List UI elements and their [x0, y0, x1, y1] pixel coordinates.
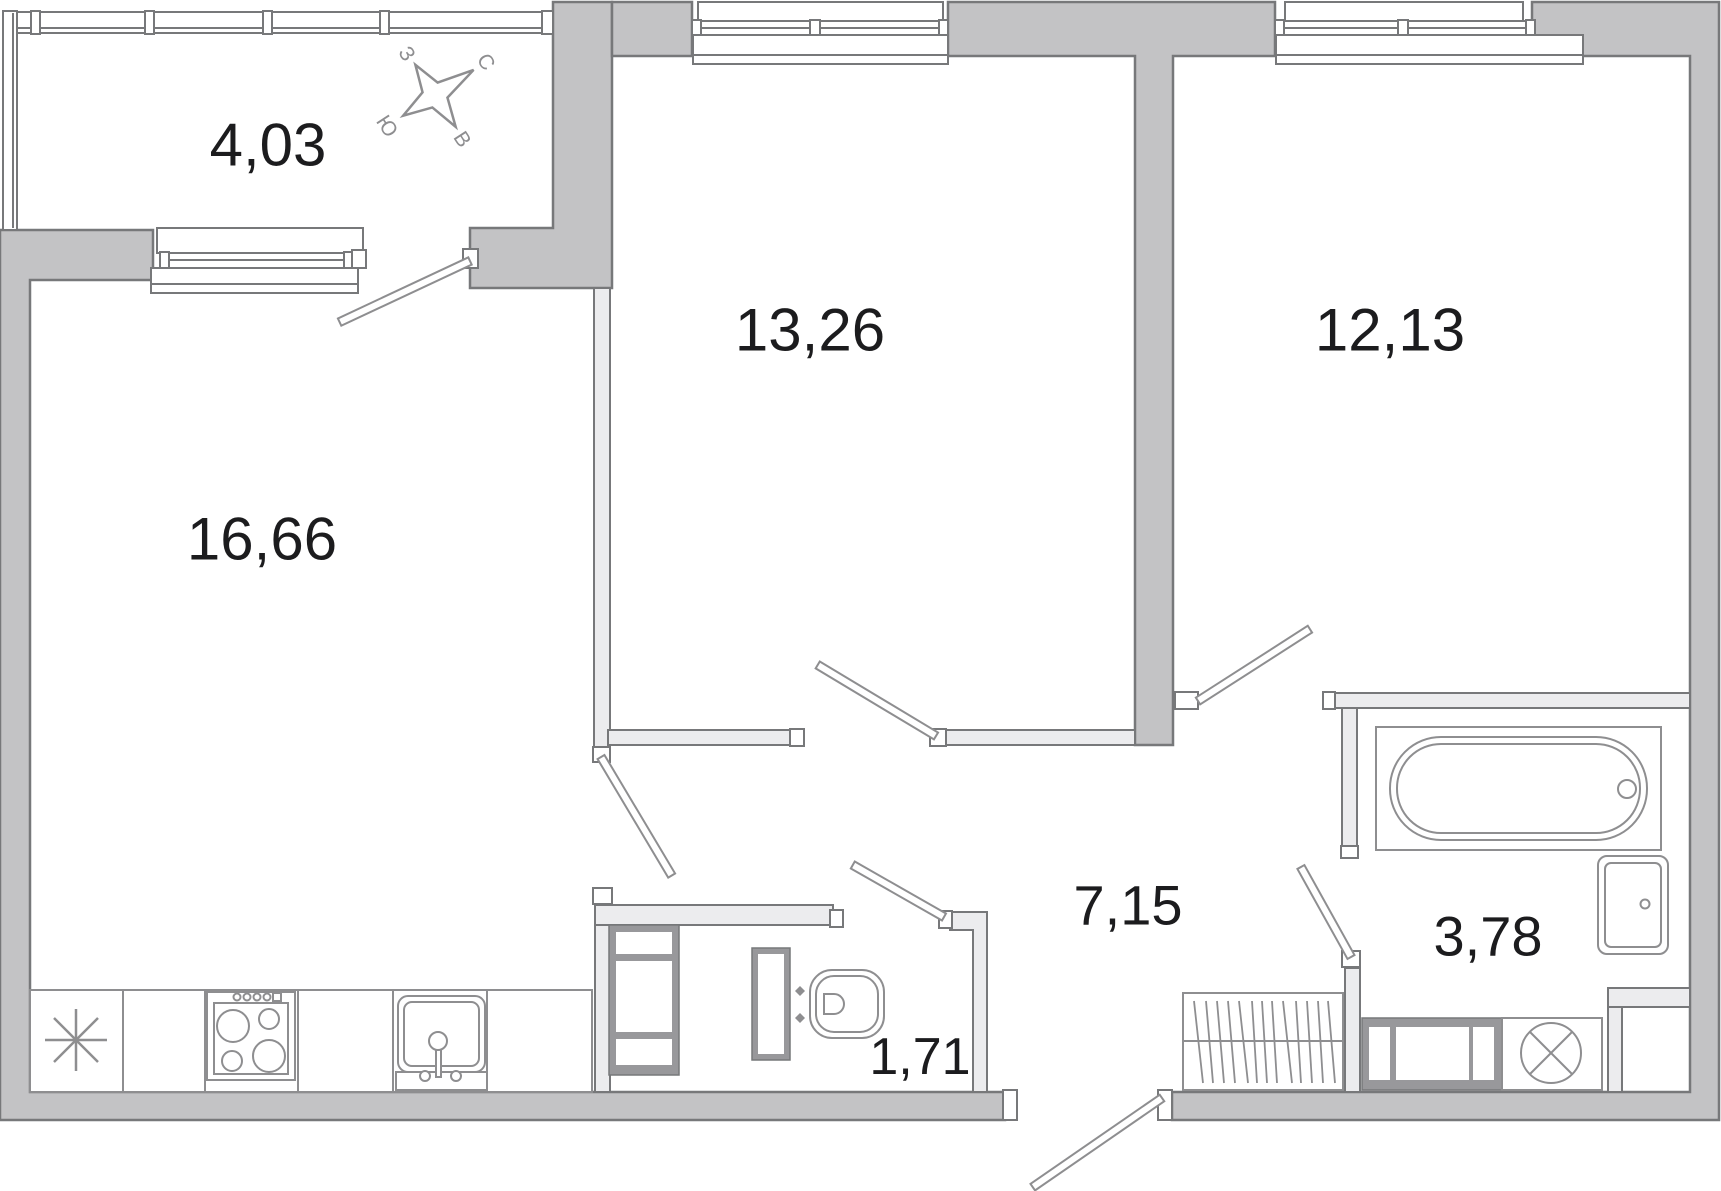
toilet-valve	[795, 986, 805, 996]
partition-bathroom-left-lower	[1345, 968, 1360, 1092]
door-bedroom-1	[816, 661, 938, 739]
window-sill	[693, 35, 948, 55]
window-post	[352, 250, 366, 268]
faucet-base	[429, 1032, 447, 1050]
window-outer-board	[1285, 2, 1523, 21]
window-living-room	[151, 228, 366, 293]
toilet-icon	[752, 948, 884, 1060]
room-label-hallway: 7,15	[1074, 873, 1183, 938]
toilet-cistern-inner	[758, 954, 784, 1054]
room-label-bedroom1: 13,26	[735, 296, 885, 365]
balcony-mullion	[31, 11, 40, 34]
room-label-balcony: 4,03	[210, 111, 327, 180]
compass-south-label: Ю	[371, 111, 402, 141]
balcony-mullion	[380, 11, 389, 34]
bathtub-icon	[1376, 727, 1661, 850]
window-post	[1275, 20, 1284, 36]
window-sill-lip	[693, 55, 948, 64]
window-post	[1526, 20, 1535, 36]
window-post	[160, 252, 169, 268]
partition-bathroom-top	[1333, 693, 1690, 708]
wardrobe-icon	[1183, 993, 1343, 1090]
balcony-rail-left	[3, 11, 17, 230]
toilet-valve	[795, 1013, 805, 1023]
duct-shaft-cell	[616, 961, 672, 1032]
bathtub-basin	[1397, 744, 1640, 833]
room-label-wc: 1,71	[869, 1027, 970, 1087]
jamb-living-door-strike	[593, 888, 612, 904]
jamb-entrance-left	[1003, 1090, 1017, 1120]
toilet-flush-button	[824, 994, 844, 1014]
bath-sink-drain	[1641, 900, 1650, 909]
stove-burner-small	[259, 1009, 279, 1029]
partition-bathroom-left-upper	[1342, 708, 1357, 848]
window-post	[692, 20, 701, 36]
faucet-tap	[451, 1071, 461, 1081]
partition-wc-left	[595, 925, 610, 1092]
window-post	[810, 20, 820, 36]
stove-knob-square	[273, 993, 281, 1001]
stove-burner-small	[222, 1051, 242, 1071]
cabinet-cell	[1369, 1027, 1390, 1080]
window-sill-lip	[1276, 55, 1583, 64]
wall-top-left-segment	[612, 2, 692, 56]
compass-east-label: В	[449, 127, 476, 151]
washing-machine-icon	[1502, 1018, 1602, 1090]
jamb-bedroom1-door-left	[790, 729, 804, 746]
stove-burner-large	[253, 1040, 285, 1072]
window-bedroom-1	[692, 2, 948, 64]
balcony-mullion	[145, 11, 154, 34]
partition-duct-niche-top	[1608, 988, 1690, 1007]
window-outer-board	[698, 2, 943, 21]
door-entrance	[1030, 1095, 1164, 1191]
partition-bedroom1-hall-right	[945, 730, 1135, 745]
duct-shaft-cell	[616, 932, 672, 954]
stove-knob	[234, 994, 241, 1001]
wall-balcony-corner-block	[470, 2, 612, 288]
window-sill	[1276, 35, 1583, 55]
window-outer-board	[157, 228, 363, 253]
stove-icon	[207, 992, 295, 1080]
window-sill	[151, 268, 358, 284]
partition-duct-niche-left	[1608, 1007, 1622, 1092]
compass-north-label: С	[472, 49, 500, 74]
bathtub-drain	[1618, 780, 1636, 798]
floor-plan: С В Ю З 4,03 16,66 13,26 12,13 7,15 1,71…	[0, 0, 1721, 1191]
stove-knob	[254, 994, 261, 1001]
balcony-rail-top	[17, 12, 553, 33]
stove-knob	[264, 994, 271, 1001]
wall-top-center-and-divider	[948, 2, 1275, 745]
compass-west-label: З	[393, 42, 419, 65]
stove-knob	[244, 994, 251, 1001]
balcony-mullion	[263, 11, 272, 34]
jamb-wc-door-left	[830, 910, 843, 927]
door-wc	[851, 862, 946, 921]
window-sill-lip	[151, 284, 358, 293]
stove-burner-large	[217, 1010, 249, 1042]
window-post	[1398, 20, 1408, 36]
cabinet-icon	[1362, 1018, 1502, 1090]
compass-rose: С В Ю З	[346, 9, 527, 183]
balcony-mullion-end	[542, 11, 553, 34]
kitchen-counter	[30, 990, 592, 1092]
door-bedroom-2	[1196, 626, 1312, 705]
fridge-symbol	[45, 1009, 107, 1071]
room-label-bathroom: 3,78	[1434, 904, 1543, 969]
duct-shaft-cell	[616, 1039, 672, 1065]
kitchen-sink-icon	[396, 996, 487, 1090]
door-living-room	[598, 755, 676, 878]
duct-shaft	[609, 925, 679, 1075]
faucet-tap	[420, 1071, 430, 1081]
room-label-bedroom2: 12,13	[1315, 296, 1465, 365]
cabinet-cell	[1396, 1027, 1469, 1080]
counter-outline	[30, 990, 592, 1092]
partition-living-bedroom1	[594, 288, 610, 747]
partition-bedroom1-hall-left	[608, 730, 790, 745]
door-bathroom	[1297, 865, 1354, 959]
partition-wc-top	[595, 905, 833, 925]
jamb-bedroom2-door-hinge	[1175, 692, 1198, 709]
jamb-bathroom-wall-upper	[1341, 846, 1358, 858]
room-label-living: 16,66	[187, 505, 337, 574]
bathroom-sink-icon	[1598, 856, 1668, 954]
cabinet-cell	[1473, 1027, 1494, 1080]
bath-sink-inner	[1605, 863, 1661, 947]
jamb-bathroom-top-wall	[1323, 692, 1335, 709]
window-post	[939, 20, 948, 36]
